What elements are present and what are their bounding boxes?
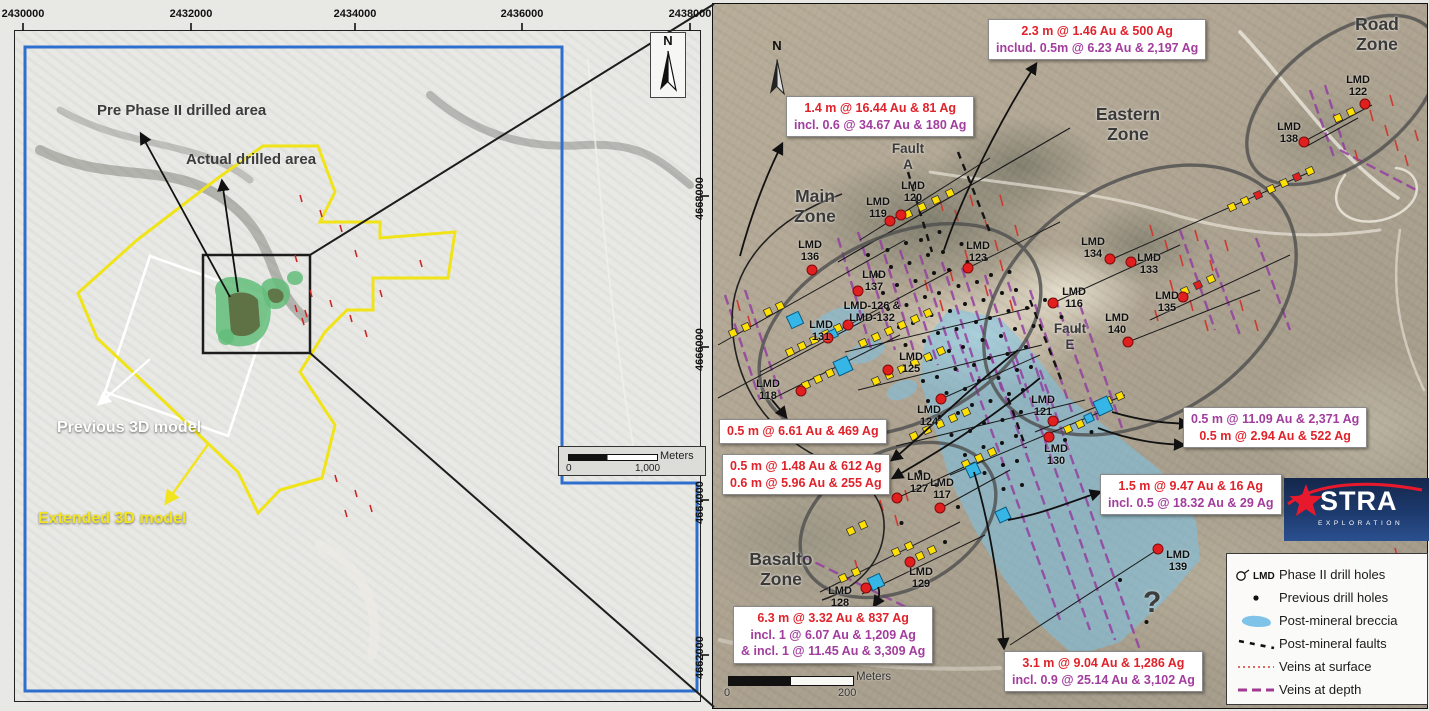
coordinate-label: 2434000 — [334, 8, 377, 20]
assay-line: 3.1 m @ 9.04 Au & 1,286 Ag — [1012, 655, 1195, 672]
zone-label: Eastern Zone — [1096, 104, 1160, 144]
assay-line: incl. 1 @ 6.07 Au & 1,209 Ag — [741, 627, 925, 644]
assay-box: 3.1 m @ 9.04 Au & 1,286 Agincl. 0.9 @ 25… — [1004, 651, 1203, 692]
zone-label: Fault E — [1054, 321, 1086, 352]
pre-phase-label: Pre Phase II drilled area — [97, 102, 266, 119]
assay-box: 0.5 m @ 1.48 Au & 612 Ag0.6 m @ 5.96 Au … — [722, 454, 890, 495]
legend-label: Veins at surface — [1279, 659, 1372, 674]
drill-hole-label: LMD 122 — [1346, 74, 1370, 99]
coordinate-label: 4664000 — [694, 481, 706, 524]
legend-item: Previous drill holes — [1233, 586, 1421, 609]
drill-hole-label: LMD 130 — [1044, 443, 1068, 468]
assay-line: 6.3 m @ 3.32 Au & 837 Ag — [741, 610, 925, 627]
drill-hole-label: LMD 121 — [1031, 394, 1055, 419]
assay-line: 1.5 m @ 9.47 Au & 16 Ag — [1108, 478, 1274, 495]
drill-hole-label: LMD 118 — [756, 378, 780, 403]
drill-hole-label: LMD 117 — [930, 477, 954, 502]
drill-hole-label: LMD-126 & LMD-132 — [844, 300, 901, 325]
drill-hole-label: LMD 136 — [798, 239, 822, 264]
extended-model-label: Extended 3D model — [38, 510, 186, 528]
assay-line: 2.3 m @ 1.46 Au & 500 Ag — [996, 23, 1198, 40]
drill-hole-label: LMD 137 — [862, 269, 886, 294]
assay-box: 1.5 m @ 9.47 Au & 16 Agincl. 0.5 @ 18.32… — [1100, 474, 1282, 515]
phase2-icon: LMD — [1233, 567, 1279, 583]
north-label: N — [651, 33, 685, 48]
scale-unit: Meters — [660, 450, 694, 462]
drill-hole-label: LMD 133 — [1137, 252, 1161, 277]
assay-line: 0.5 m @ 6.61 Au & 469 Ag — [727, 423, 879, 440]
drill-hole-label: LMD 139 — [1166, 549, 1190, 574]
actual-area-label: Actual drilled area — [186, 151, 316, 168]
assay-line: 0.5 m @ 2.94 Au & 522 Ag — [1191, 428, 1359, 445]
scale-start: 0 — [566, 463, 572, 474]
assay-line: incl. 0.6 @ 34.67 Au & 180 Ag — [794, 117, 966, 134]
coordinate-label: 2430000 — [2, 8, 45, 20]
veins-surface-icon — [1233, 663, 1279, 671]
legend-item: LMDPhase II drill holes — [1233, 563, 1421, 586]
legend-label: Post-mineral faults — [1279, 636, 1387, 651]
svg-text:LMD: LMD — [1253, 571, 1275, 582]
faults-icon — [1233, 637, 1279, 651]
drill-hole-label: LMD 140 — [1105, 312, 1129, 337]
zone-label: Fault A — [892, 141, 924, 172]
drill-hole-label: LMD 138 — [1277, 121, 1301, 146]
assay-line: & incl. 1 @ 11.45 Au & 3,309 Ag — [741, 643, 925, 660]
north-arrow-icon — [762, 53, 792, 101]
assay-line: 0.6 m @ 5.96 Au & 255 Ag — [730, 475, 882, 492]
coordinate-label: 4662000 — [694, 636, 706, 679]
north-arrow-left: N — [650, 32, 686, 98]
drill-hole-label: LMD 129 — [909, 566, 933, 591]
legend-label: Veins at depth — [1279, 682, 1361, 697]
drill-hole-label: LMD 131 — [809, 319, 833, 344]
coordinate-label: 2432000 — [170, 8, 213, 20]
assay-box: 0.5 m @ 11.09 Au & 2,371 Ag0.5 m @ 2.94 … — [1183, 407, 1367, 448]
coordinate-label: 4666000 — [694, 328, 706, 371]
astra-exploration-logo: STRA EXPLORATION — [1284, 478, 1429, 541]
previous-model-label: Previous 3D model — [57, 419, 201, 437]
drill-hole-label: LMD 134 — [1081, 236, 1105, 261]
assay-box: 2.3 m @ 1.46 Au & 500 Aginclud. 0.5m @ 6… — [988, 19, 1206, 60]
assay-line: includ. 0.5m @ 6.23 Au & 2,197 Ag — [996, 40, 1198, 57]
drill-hole-label: LMD 127 — [907, 471, 931, 496]
map-legend: LMDPhase II drill holesPrevious drill ho… — [1226, 553, 1428, 705]
scale-end: 1,000 — [635, 463, 660, 474]
scale-end: 200 — [838, 687, 856, 699]
coordinate-label: 4668000 — [694, 177, 706, 220]
zone-label: Road Zone — [1355, 14, 1399, 54]
question-mark-annotation: ? — [1143, 586, 1161, 620]
legend-label: Post-mineral breccia — [1279, 613, 1398, 628]
legend-label: Phase II drill holes — [1279, 567, 1385, 582]
legend-item: Post-mineral breccia — [1233, 609, 1421, 632]
breccia-icon — [1233, 613, 1279, 629]
assay-box: 0.5 m @ 6.61 Au & 469 Ag — [719, 419, 887, 444]
drill-hole-label: LMD 120 — [901, 180, 925, 205]
legend-item: Veins at surface — [1233, 655, 1421, 678]
coordinate-label: 2436000 — [501, 8, 544, 20]
assay-line: 0.5 m @ 1.48 Au & 612 Ag — [730, 458, 882, 475]
overview-scale-bar: Meters 0 1,000 — [558, 446, 706, 476]
drill-hole-label: LMD 125 — [899, 351, 923, 376]
assay-line: incl. 0.9 @ 25.14 Au & 3,102 Ag — [1012, 672, 1195, 689]
assay-box: 1.4 m @ 16.44 Au & 81 Agincl. 0.6 @ 34.6… — [786, 96, 974, 137]
assay-line: 0.5 m @ 11.09 Au & 2,371 Ag — [1191, 411, 1359, 428]
scale-bar-graphic — [790, 676, 854, 686]
logo-sub-text: EXPLORATION — [1318, 520, 1403, 527]
drill-hole-label: LMD 119 — [866, 196, 890, 221]
drill-hole-label: LMD 123 — [966, 240, 990, 265]
assay-line: incl. 0.5 @ 18.32 Au & 29 Ag — [1108, 495, 1274, 512]
legend-label: Previous drill holes — [1279, 590, 1388, 605]
drill-hole-label: LMD 116 — [1062, 286, 1086, 311]
assay-line: 1.4 m @ 16.44 Au & 81 Ag — [794, 100, 966, 117]
coordinate-label: 2438000 — [669, 8, 712, 20]
north-label: N — [762, 38, 792, 53]
zone-label: Basalto Zone — [749, 549, 812, 589]
north-arrow-icon — [651, 48, 685, 94]
scale-bar-graphic — [728, 676, 792, 686]
overview-satellite-map — [14, 30, 701, 702]
legend-item: Veins at depth — [1233, 678, 1421, 701]
scale-bar-graphic — [568, 454, 658, 461]
previous-icon — [1233, 592, 1279, 604]
veins-depth-icon — [1233, 685, 1279, 695]
logo-brand-text: STRA — [1320, 486, 1398, 517]
legend-item: Post-mineral faults — [1233, 632, 1421, 655]
assay-box: 6.3 m @ 3.32 Au & 837 Agincl. 1 @ 6.07 A… — [733, 606, 933, 664]
scale-start: 0 — [724, 687, 730, 699]
drill-hole-label: LMD 124 — [917, 404, 941, 429]
zone-label: Main Zone — [794, 186, 836, 226]
exploration-map-figure: 24300002432000243400024360002438000 4668… — [0, 0, 1429, 711]
drill-hole-label: LMD 135 — [1155, 290, 1179, 315]
scale-unit: Meters — [856, 671, 891, 683]
